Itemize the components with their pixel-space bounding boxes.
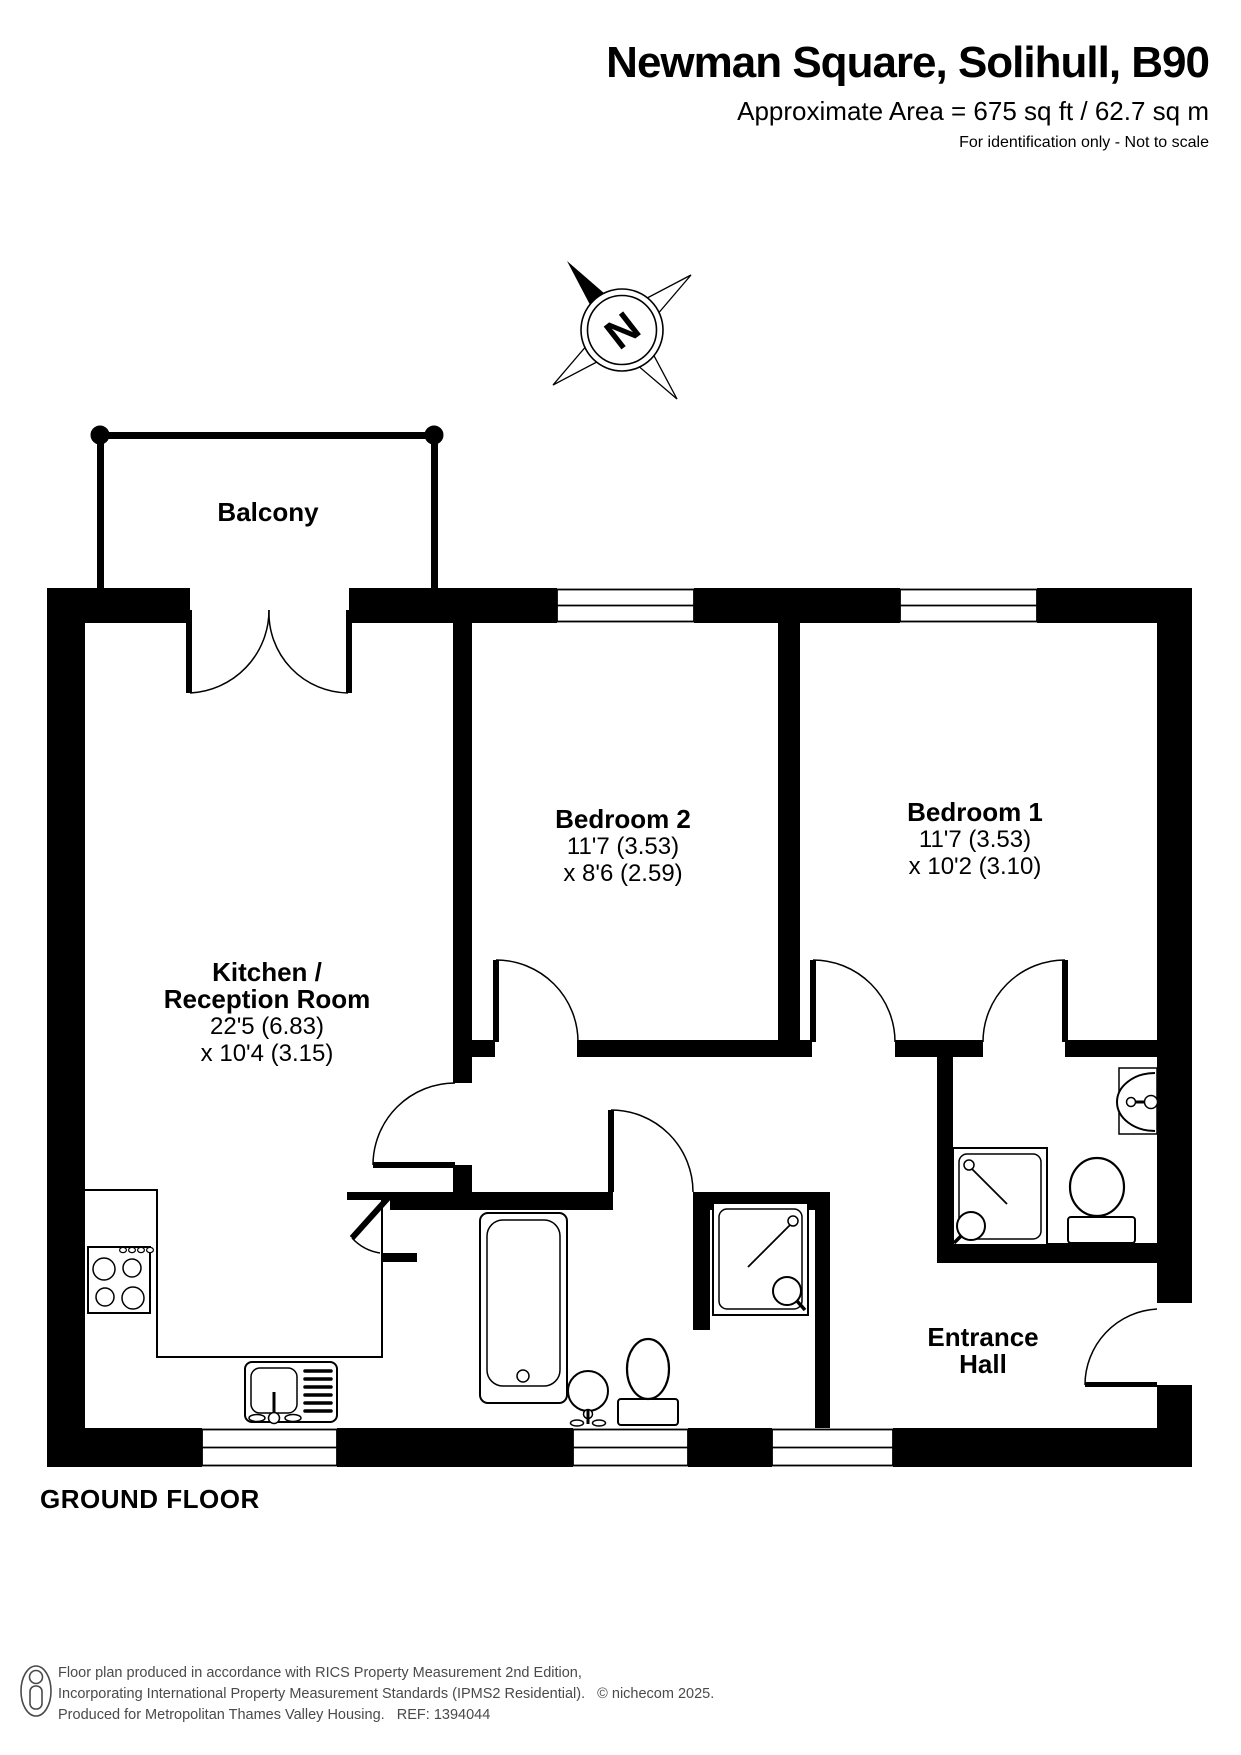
- kitchen-reception-label: Kitchen / Reception Room 22'5 (6.83) x 1…: [117, 959, 417, 1067]
- footer-line: Produced for Metropolitan Thames Valley …: [58, 1705, 714, 1726]
- floorplan-page: N Newman Square, Solihull, B90 Approxima…: [0, 0, 1241, 1755]
- floor-name: GROUND FLOOR: [40, 1484, 260, 1515]
- railing-post: [425, 426, 443, 444]
- door-balcony: [186, 610, 352, 693]
- room-name: Entrance: [883, 1324, 1083, 1351]
- scale-disclaimer: For identification only - Not to scale: [959, 134, 1209, 152]
- door-bathroom: [608, 1110, 693, 1192]
- hob-icon: [88, 1247, 153, 1313]
- ensuite-shower-tray-icon: [953, 1148, 1047, 1245]
- pedestal-basin-icon: [568, 1371, 608, 1426]
- page-title: Newman Square, Solihull, B90: [606, 38, 1209, 88]
- person-icon: [21, 1666, 51, 1716]
- room-name: Balcony: [118, 499, 418, 526]
- compass-rose-icon: N: [553, 261, 691, 399]
- approximate-area: Approximate Area = 675 sq ft / 62.7 sq m: [737, 96, 1209, 127]
- room-dimensions: 11'7 (3.53): [473, 833, 773, 860]
- room-dimensions: x 10'4 (3.15): [117, 1040, 417, 1067]
- room-name: Hall: [883, 1351, 1083, 1378]
- room-dimensions: x 10'2 (3.10): [825, 853, 1125, 880]
- toilet-icon: [618, 1339, 678, 1425]
- ensuite-wall-basin-icon: [1117, 1068, 1158, 1134]
- door-kitchen: [373, 1083, 455, 1168]
- door-entrance: [1085, 1309, 1157, 1387]
- door-ensuite: [983, 960, 1068, 1042]
- bedroom2-label: Bedroom 2 11'7 (3.53) x 8'6 (2.59): [473, 806, 773, 887]
- ensuite-toilet-icon: [1068, 1158, 1135, 1243]
- shower-tray-icon: [713, 1203, 808, 1315]
- window-bathroom: [573, 1430, 688, 1466]
- kitchen-sink-icon: [245, 1362, 337, 1424]
- room-dimensions: x 8'6 (2.59): [473, 860, 773, 887]
- bedroom1-label: Bedroom 1 11'7 (3.53) x 10'2 (3.10): [825, 799, 1125, 880]
- window-hall: [772, 1430, 893, 1466]
- room-name: Kitchen /: [117, 959, 417, 986]
- railing-post: [91, 426, 109, 444]
- room-name: Reception Room: [117, 986, 417, 1013]
- window-kitchen: [202, 1430, 337, 1466]
- door-bedroom1: [810, 960, 895, 1042]
- window-bedroom2: [557, 590, 694, 622]
- door-bedroom2: [493, 960, 578, 1042]
- footer-line: Floor plan produced in accordance with R…: [58, 1663, 714, 1684]
- footer-disclaimer: Floor plan produced in accordance with R…: [58, 1663, 714, 1726]
- room-name: Bedroom 1: [825, 799, 1125, 826]
- bath-icon: [480, 1213, 567, 1403]
- room-dimensions: 22'5 (6.83): [117, 1013, 417, 1040]
- entrance-hall-label: Entrance Hall: [883, 1324, 1083, 1378]
- room-dimensions: 11'7 (3.53): [825, 826, 1125, 853]
- footer-line: Incorporating International Property Mea…: [58, 1684, 714, 1705]
- window-bedroom1: [900, 590, 1037, 622]
- room-name: Bedroom 2: [473, 806, 773, 833]
- balcony-label: Balcony: [118, 499, 418, 526]
